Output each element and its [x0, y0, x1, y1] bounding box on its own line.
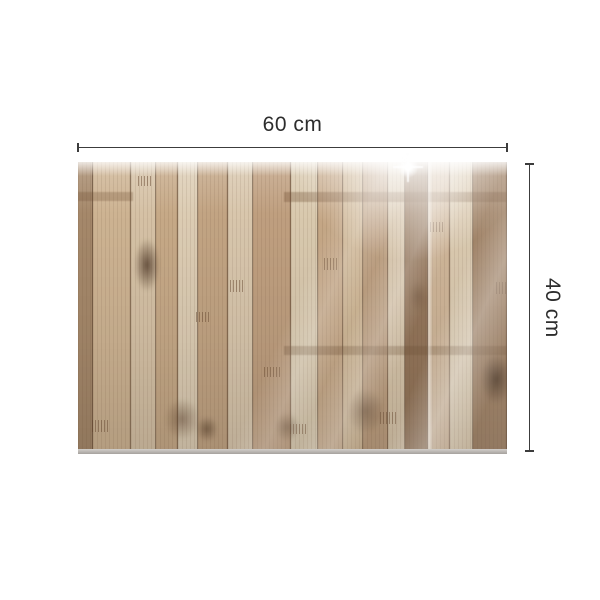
- plank-joint-band: [284, 346, 507, 355]
- wood-knot: [164, 398, 200, 440]
- finger-joint-mark: [430, 222, 444, 232]
- wood-knot: [134, 238, 160, 292]
- height-line-bottom-tick: [525, 450, 534, 452]
- wood-plank: [253, 162, 291, 449]
- wood-plank: [473, 162, 507, 449]
- finger-joint-mark: [138, 176, 152, 186]
- width-dimension-line: [77, 147, 508, 148]
- planks-container: [78, 162, 507, 449]
- finger-joint-mark: [264, 367, 280, 377]
- wood-plank: [450, 162, 473, 449]
- wood-knot: [346, 388, 384, 434]
- finger-joint-mark: [380, 412, 396, 424]
- wood-panel: [78, 162, 507, 454]
- plank-joint-band: [284, 192, 507, 202]
- finger-joint-mark: [324, 258, 338, 270]
- wood-plank: [93, 162, 131, 449]
- finger-joint-mark: [230, 280, 244, 292]
- wood-plank: [318, 162, 343, 449]
- wood-plank: [198, 162, 228, 449]
- wood-plank: [388, 162, 405, 449]
- width-line-right-tick: [506, 143, 508, 152]
- width-dimension-label: 60 cm: [77, 113, 508, 137]
- wood-plank: [78, 162, 93, 449]
- wood-knot: [480, 354, 507, 404]
- finger-joint-mark: [92, 420, 108, 432]
- height-dimension-label: 40 cm: [536, 163, 568, 452]
- wood-knot: [408, 280, 428, 312]
- wood-plank: [228, 162, 253, 449]
- product-image: 60 cm 40 cm: [0, 0, 600, 600]
- plank-joint-band: [78, 192, 133, 201]
- height-dimension-line: [529, 163, 530, 452]
- finger-joint-mark: [196, 312, 210, 322]
- wood-plank: [428, 162, 450, 449]
- wood-knot: [196, 416, 218, 442]
- width-line-left-tick: [77, 143, 79, 152]
- wood-plank: [291, 162, 318, 449]
- wood-plank: [131, 162, 156, 449]
- finger-joint-mark: [290, 424, 306, 434]
- glass-bottom-edge: [78, 449, 507, 454]
- finger-joint-mark: [496, 282, 507, 294]
- height-line-top-tick: [525, 163, 534, 165]
